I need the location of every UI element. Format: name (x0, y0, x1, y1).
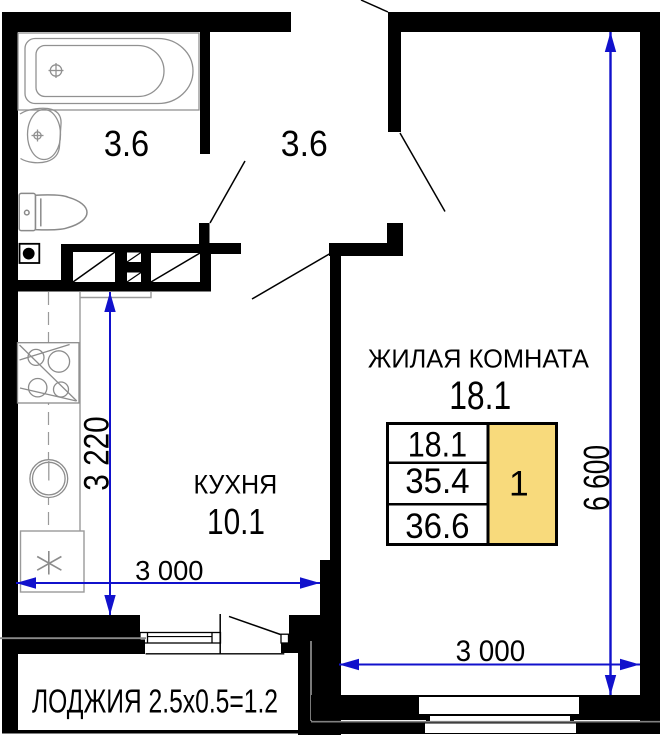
svg-text:3 000: 3 000 (456, 635, 526, 668)
svg-text:ЖИЛАЯ КОМНАТА: ЖИЛАЯ КОМНАТА (368, 344, 590, 374)
svg-text:ЛОДЖИЯ 2.5x0.5=1.2: ЛОДЖИЯ 2.5x0.5=1.2 (32, 683, 278, 720)
svg-text:18.1: 18.1 (449, 374, 511, 418)
svg-text:6 600: 6 600 (577, 445, 617, 511)
svg-text:КУХНЯ: КУХНЯ (194, 470, 278, 500)
svg-text:1: 1 (509, 464, 529, 504)
svg-text:18.1: 18.1 (408, 425, 467, 464)
svg-text:10.1: 10.1 (207, 501, 265, 542)
svg-text:3.6: 3.6 (104, 123, 149, 164)
svg-text:3 000: 3 000 (135, 554, 203, 586)
svg-text:36.6: 36.6 (405, 507, 469, 546)
svg-text:3 220: 3 220 (77, 416, 117, 490)
svg-text:3.6: 3.6 (281, 123, 328, 164)
svg-text:35.4: 35.4 (405, 462, 469, 501)
